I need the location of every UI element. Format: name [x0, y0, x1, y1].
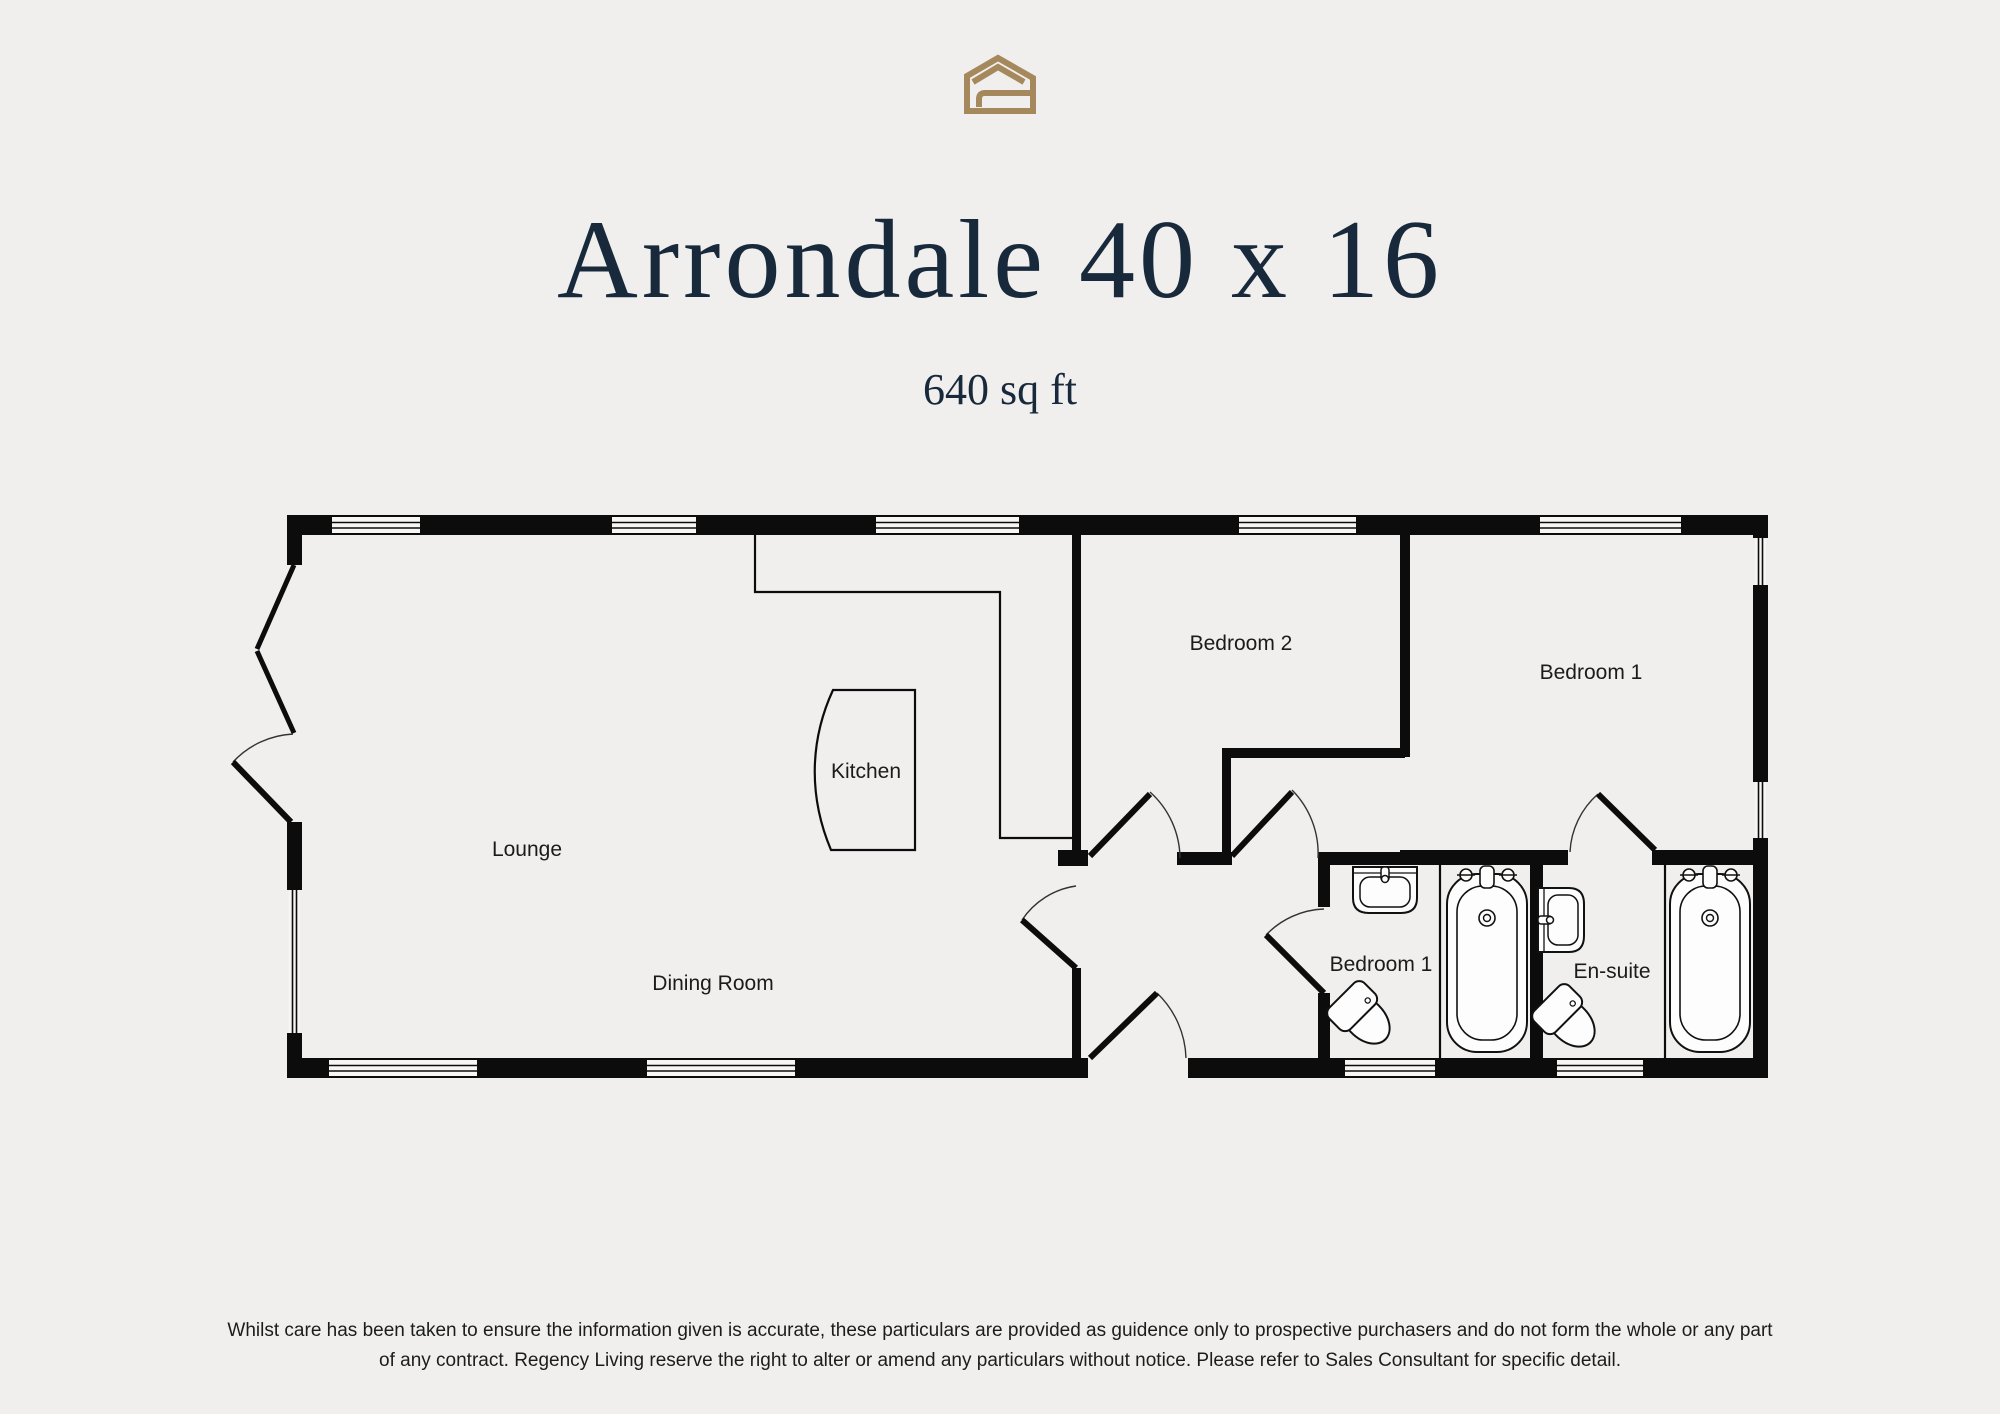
room-label-bathroom: Bedroom 1: [1330, 953, 1433, 976]
doors: [233, 734, 1655, 1058]
window-bottom-ensuite: [1557, 1060, 1643, 1076]
wall-lounge-hall-stub: [1072, 968, 1081, 1060]
windows: [289, 517, 1766, 1076]
door-arc: [1570, 794, 1598, 852]
floor-plan: Lounge Dining Room Kitchen Bedroom 2 Bed…: [0, 0, 2000, 1414]
disclaimer-line-2: of any contract. Regency Living reserve …: [150, 1346, 1850, 1376]
wall-right-mid: [1753, 585, 1768, 782]
kitchen-boundary-line: [755, 535, 1072, 838]
kitchen-partition-lines: [755, 535, 1665, 1058]
wall-bedroom2-step-v: [1222, 748, 1231, 865]
room-label-dining-room: Dining Room: [652, 972, 773, 995]
wall-left-mid: [287, 822, 302, 890]
sink-icon: [1538, 888, 1584, 952]
toilet-icon: [1324, 978, 1403, 1057]
window-top-kitchen: [876, 517, 1019, 533]
window-top-2: [612, 517, 696, 533]
window-bottom-1: [329, 1060, 477, 1076]
door-leaf: [1266, 935, 1324, 993]
door-leaf: [1232, 792, 1292, 856]
wall-left-top: [287, 515, 302, 565]
bay-wall-lower: [257, 651, 294, 733]
bay-wall-upper: [257, 565, 294, 649]
wall-bedroom2-bedroom1: [1400, 535, 1410, 757]
wall-bedroom1-bottom-left: [1400, 850, 1568, 865]
door-leaf: [1090, 794, 1150, 856]
window-right-1: [1755, 538, 1766, 585]
wall-bedroom2-step-h: [1222, 748, 1405, 758]
window-bottom-2: [647, 1060, 795, 1076]
sink-icon: [1353, 867, 1417, 913]
wall-lounge-bedroom2: [1072, 535, 1081, 852]
bathroom-door: [1266, 909, 1324, 993]
window-top-bedroom1: [1540, 517, 1681, 533]
room-label-bedroom-1: Bedroom 1: [1540, 661, 1643, 684]
door-jamb-hall: [1058, 850, 1088, 866]
room-label-bedroom-2: Bedroom 2: [1190, 632, 1293, 655]
door-arc: [1022, 886, 1076, 920]
window-top-bedroom2: [1239, 517, 1356, 533]
bay-door: [233, 734, 293, 822]
door-arc: [1292, 790, 1318, 858]
window-right-2: [1755, 782, 1766, 838]
window-bottom-bathroom: [1345, 1060, 1435, 1076]
room-label-kitchen: Kitchen: [831, 760, 901, 783]
bedroom2-door: [1090, 792, 1180, 858]
door-leaf: [1598, 794, 1655, 850]
window-left: [289, 890, 300, 1033]
room-label-lounge: Lounge: [492, 838, 562, 861]
door-leaf: [1090, 993, 1157, 1058]
wall-right-bottom: [1753, 838, 1768, 1078]
wall-bathroom-left-upper: [1318, 865, 1330, 907]
wall-bedroom1-bottom-right: [1652, 850, 1753, 865]
door-leaf: [233, 762, 291, 822]
bath-icon: [1447, 866, 1527, 1052]
door-leaf: [1022, 920, 1076, 968]
bath-icon: [1670, 866, 1750, 1052]
door-arc: [1266, 909, 1324, 935]
wall-left-bottom: [287, 1033, 302, 1078]
lounge-hall-door: [1022, 886, 1076, 968]
room-label-en-suite: En-suite: [1573, 960, 1650, 983]
wall-right-top: [1753, 515, 1768, 538]
bedroom1-door: [1232, 790, 1318, 858]
door-arc: [1150, 792, 1180, 858]
door-arc: [233, 734, 293, 762]
ensuite-door: [1570, 794, 1655, 852]
entrance-door: [1090, 993, 1186, 1058]
wall-bathroom-left-lower: [1318, 993, 1330, 1058]
disclaimer-line-1: Whilst care has been taken to ensure the…: [150, 1316, 1850, 1346]
window-top-1: [332, 517, 420, 533]
wall-bottom-right: [1188, 1058, 1768, 1078]
door-arc: [1157, 993, 1186, 1058]
disclaimer: Whilst care has been taken to ensure the…: [150, 1316, 1850, 1376]
